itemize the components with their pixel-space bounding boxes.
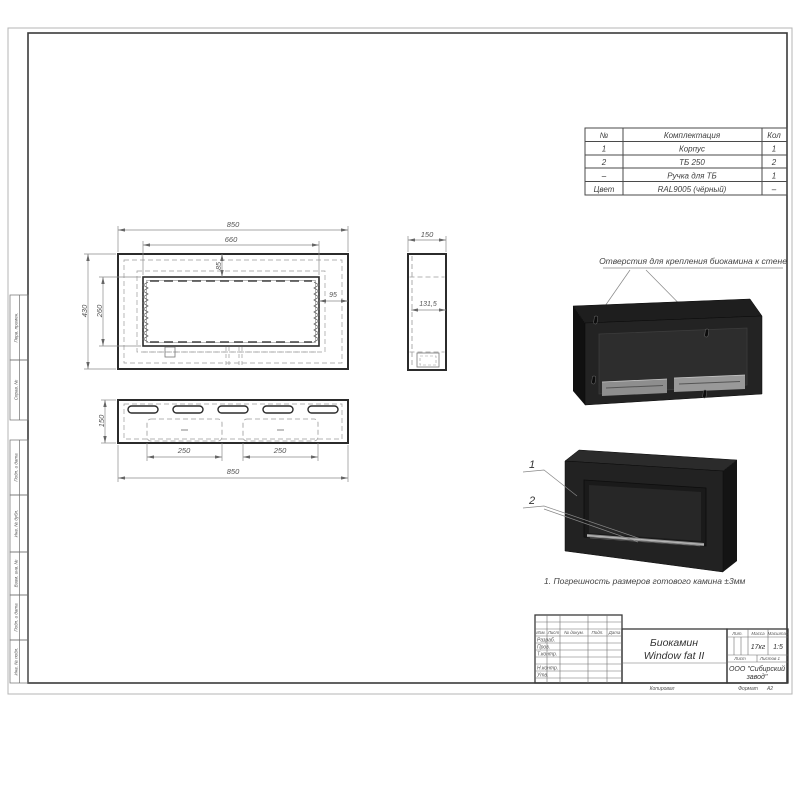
callout-2: 2	[528, 495, 535, 507]
front-view-opening	[143, 277, 319, 346]
dim-top-burner-right: 250	[273, 446, 287, 455]
dim-front-side-offset: 95	[329, 292, 337, 299]
tb-label-tkontr: Т.контр.	[537, 652, 557, 658]
tb-label-doc-num: № докум.	[564, 630, 584, 635]
tb-label-podp: Подп.	[592, 630, 604, 635]
stamp-label: Инв. № дубл.	[14, 510, 19, 538]
parts-table-cell: 1	[772, 145, 776, 154]
kopiroval-label: Копировал	[650, 686, 675, 692]
dim-top-depth: 150	[97, 414, 106, 427]
parts-table-cell: Корпус	[679, 145, 705, 154]
tb-label-izm: Изм.	[536, 630, 546, 635]
tb-label-nkontr: Н.контр.	[537, 666, 558, 672]
mounting-holes-annotation: Отверстия для крепления биокамина к стен…	[599, 256, 787, 266]
dim-top-overall-width: 850	[227, 467, 240, 476]
tb-scale-value: 1:5	[773, 644, 783, 651]
render-left-face	[573, 306, 585, 405]
stamp-label: Перв. примен.	[14, 313, 19, 343]
frame-stamp-labels: Перв. примен. Справ. № Подп. и дата Инв.…	[14, 313, 19, 676]
drawing-sheet: Перв. примен. Справ. № Подп. и дата Инв.…	[0, 0, 800, 800]
format-value: А2	[766, 686, 773, 692]
render-front-view: 1 2 1. Погрешность размеров готового кам…	[523, 450, 746, 586]
tb-label-prov: Пров.	[537, 645, 550, 651]
stamp-label: Инв. № подл.	[14, 648, 19, 676]
dim-front-overall-width: 850	[227, 220, 240, 229]
tb-company-line1: ООО "Сибирский	[729, 665, 785, 673]
stamp-label: Подп. и дата	[14, 453, 19, 482]
stamp-label: Взам. инв. №	[14, 559, 19, 587]
parts-table-header: №	[600, 131, 609, 140]
drawing-canvas: Перв. примен. Справ. № Подп. и дата Инв.…	[0, 0, 800, 800]
side-dim-lines	[408, 236, 446, 310]
tb-company-line2: завод"	[746, 673, 768, 681]
tb-mass-value: 17кг	[751, 644, 766, 651]
parts-table-cell: ТБ 250	[679, 158, 705, 167]
parts-table-cell: 1	[772, 172, 776, 181]
title-block: Изм. Лист № докум. Подп. Дата Разраб. Пр…	[535, 615, 789, 692]
parts-table-cell: 1	[602, 145, 606, 154]
render2-opening-back	[589, 485, 701, 541]
dim-top-burner-left: 250	[177, 446, 191, 455]
tb-label-masshtab: Масштаб	[767, 631, 788, 636]
tolerance-note: 1. Погрешность размеров готового камина …	[544, 576, 746, 586]
callout-1: 1	[529, 459, 535, 471]
dim-side-inner-depth: 131,5	[419, 301, 437, 308]
stamp-label: Справ. №	[14, 380, 19, 401]
tb-label-sheets: Листов 1	[759, 656, 781, 661]
front-dim-lines	[84, 226, 348, 369]
parts-table-header: Комплектация	[664, 131, 721, 140]
doc-name-line2: Window fat II	[644, 650, 705, 662]
parts-table-cell: 2	[601, 158, 607, 167]
parts-table-cell: Ручка для ТБ	[667, 172, 716, 181]
parts-table-header: Кол	[767, 131, 781, 140]
dim-front-opening-height: 260	[95, 304, 104, 318]
parts-table-cell: –	[601, 172, 607, 181]
dim-front-top-offset: 85	[216, 262, 223, 270]
dim-front-opening-width: 660	[225, 235, 238, 244]
render-interior-view: Отверстия для крепления биокамина к стен…	[573, 256, 787, 405]
tb-label-sheet: Лист	[733, 656, 746, 661]
dim-side-depth: 150	[421, 230, 434, 239]
format-label: Формат	[738, 686, 758, 692]
parts-table-cell: Цвет	[594, 185, 615, 194]
tb-label-lit: Лит.	[731, 631, 743, 636]
parts-table-cell: –	[771, 185, 777, 194]
dim-front-overall-height: 430	[80, 304, 89, 317]
front-view: 850 660 85 95 430 260	[80, 220, 348, 369]
side-view: 150 131,5	[408, 230, 446, 370]
stamp-label: Подп. и дата	[14, 603, 19, 632]
tb-label-utv: Утв.	[537, 673, 548, 679]
parts-table: № Комплектация Кол 1 Корпус 1 2 ТБ 250 2…	[585, 128, 787, 195]
tb-label-massa: Масса	[751, 631, 765, 636]
doc-name-line1: Биокамин	[650, 637, 698, 649]
parts-table-cell: 2	[771, 158, 777, 167]
vent-slots	[128, 406, 338, 413]
tb-label-data: Дата	[608, 630, 621, 635]
render2-right-face	[723, 460, 737, 572]
tb-label-list: Лист	[547, 630, 560, 635]
parts-table-cell: RAL9005 (чёрный)	[658, 185, 727, 194]
tb-label-razrab: Разраб.	[537, 638, 555, 644]
top-view: 250 250 850 150	[97, 400, 348, 482]
